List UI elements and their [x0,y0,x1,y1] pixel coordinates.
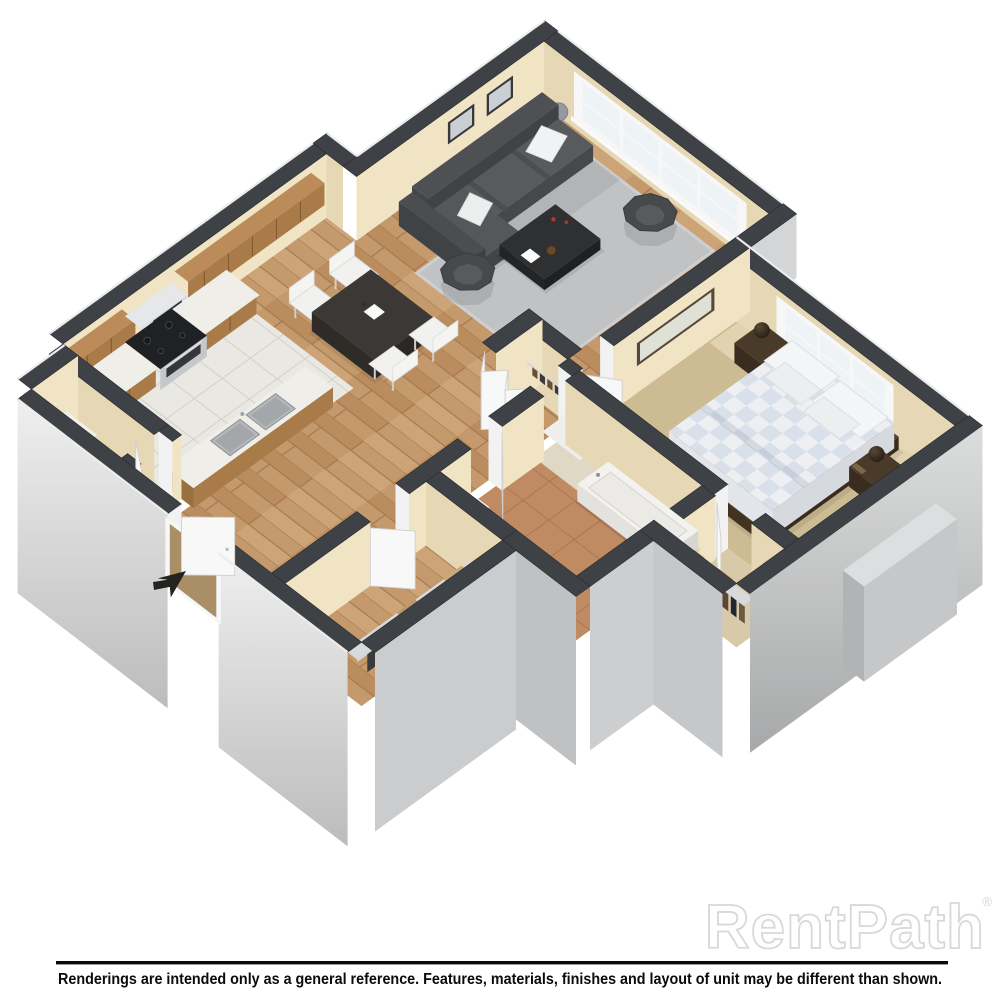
burner [180,333,185,338]
candle [551,217,555,221]
footer: Renderings are intended only as a genera… [56,961,948,988]
burner [165,322,172,329]
tub-faucet [596,473,600,477]
bathroom-door [502,433,503,523]
floorplan-scene [18,21,983,847]
bowl [547,246,556,255]
front-door [181,517,234,576]
disclaimer-text: Renderings are intended only as a genera… [58,971,942,988]
burner [158,348,163,353]
watermark: RentPath ® [705,893,993,962]
footer-rule [56,961,948,964]
registered-mark: ® [982,894,992,909]
table-lamp [754,322,770,338]
entry-closet-door [370,528,415,589]
floorplan-page: RentPath ® Renderings are intended only … [0,0,1000,1000]
burner [144,337,151,344]
table-lamp [869,446,885,462]
floorplan-rendering: RentPath ® Renderings are intended only … [0,0,1000,1000]
watermark-text: RentPath [705,893,985,962]
faucet [240,412,244,416]
door-knob [226,548,229,551]
